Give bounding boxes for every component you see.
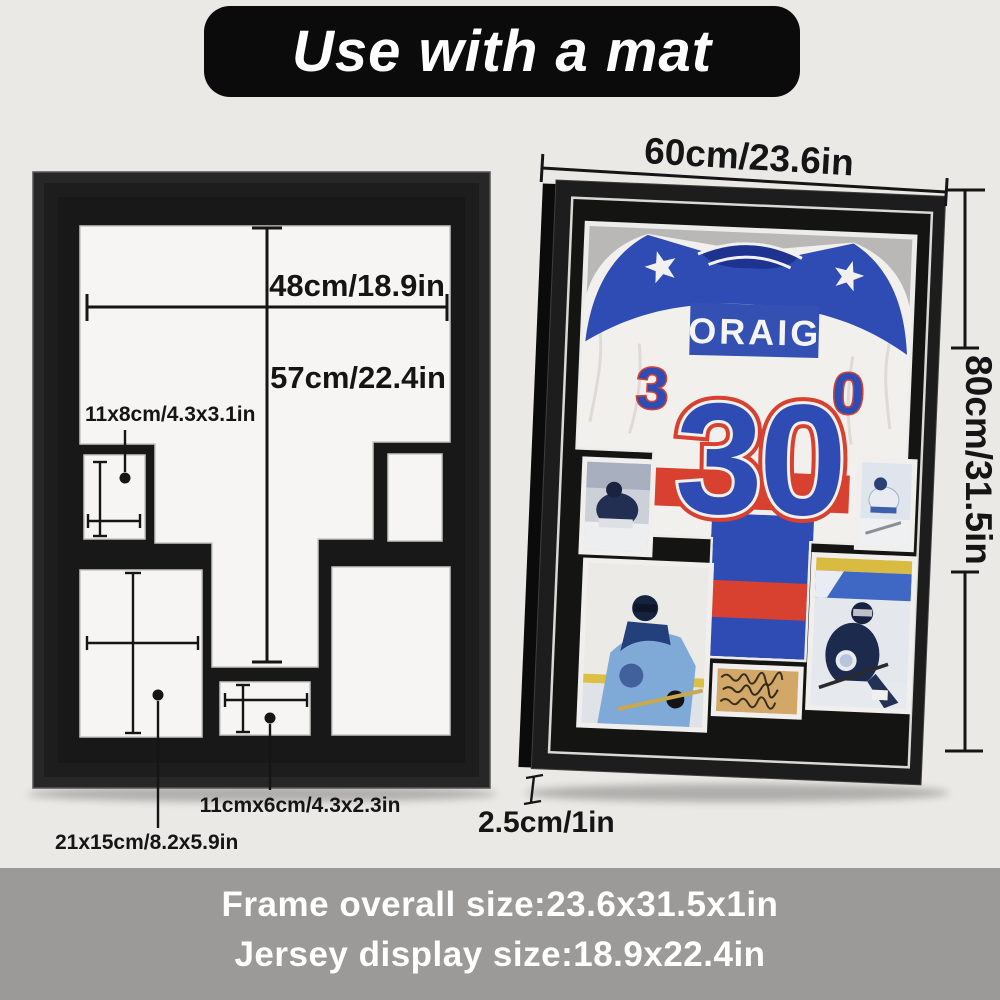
- footer-frame-size: Frame overall size:23.6x31.5x1in: [222, 884, 779, 926]
- jersey-number: 30: [674, 370, 844, 549]
- right-frame-shadow: [525, 784, 949, 802]
- footer-bar: Frame overall size:23.6x31.5x1in Jersey …: [0, 868, 1000, 1000]
- right-framed-jersey: ORAIG 3 0 30 30: [518, 179, 945, 784]
- dim-width-48cm-label: 48cm/18.9in: [269, 268, 445, 303]
- left-opening-small-top-right: [388, 454, 442, 541]
- photo-top-left: [578, 456, 656, 557]
- photo-right-large: [805, 552, 918, 714]
- dim-height-80cm-label: 80cm/31.5in: [958, 355, 999, 565]
- diagram-canvas: 48cm/18.9in 57cm/22.4in 11x8cm/4.3x3.1in: [0, 0, 1000, 1000]
- left-opening-large-right: [332, 567, 450, 735]
- title-banner-text: Use with a mat: [292, 18, 712, 85]
- callout-11x8-label: 11x8cm/4.3x3.1in: [85, 403, 255, 426]
- left-opening-small-bottom: [220, 682, 310, 735]
- jersey-nameplate: ORAIG: [688, 303, 822, 358]
- photo-signature-card: [711, 663, 804, 720]
- left-opening-large-left: [80, 570, 202, 737]
- title-banner: Use with a mat: [204, 6, 800, 97]
- dim-height-57cm-label: 57cm/22.4in: [270, 360, 446, 395]
- footer-jersey-size: Jersey display size:18.9x22.4in: [234, 934, 765, 976]
- photo-top-right: [854, 457, 918, 552]
- jersey-sleeve-number-left: 3: [635, 356, 670, 422]
- callout-21x15-label: 21x15cm/8.2x5.9in: [55, 831, 238, 854]
- left-opening-small-top-left: [84, 455, 145, 539]
- callout-11x6-label: 11cmx6cm/4.3x2.3in: [200, 794, 401, 817]
- left-mat-diagram: 48cm/18.9in 57cm/22.4in 11x8cm/4.3x3.1in: [33, 172, 490, 854]
- photo-left-large: [576, 557, 714, 732]
- jersey-hem-stripe-red: [708, 580, 809, 621]
- dim-depth-label: 2.5cm/1in: [478, 806, 615, 839]
- dim-height-80cm: 80cm/31.5in: [945, 190, 999, 751]
- jersey-name-text: ORAIG: [688, 310, 822, 354]
- dim-depth-2p5cm: 2.5cm/1in: [478, 775, 615, 839]
